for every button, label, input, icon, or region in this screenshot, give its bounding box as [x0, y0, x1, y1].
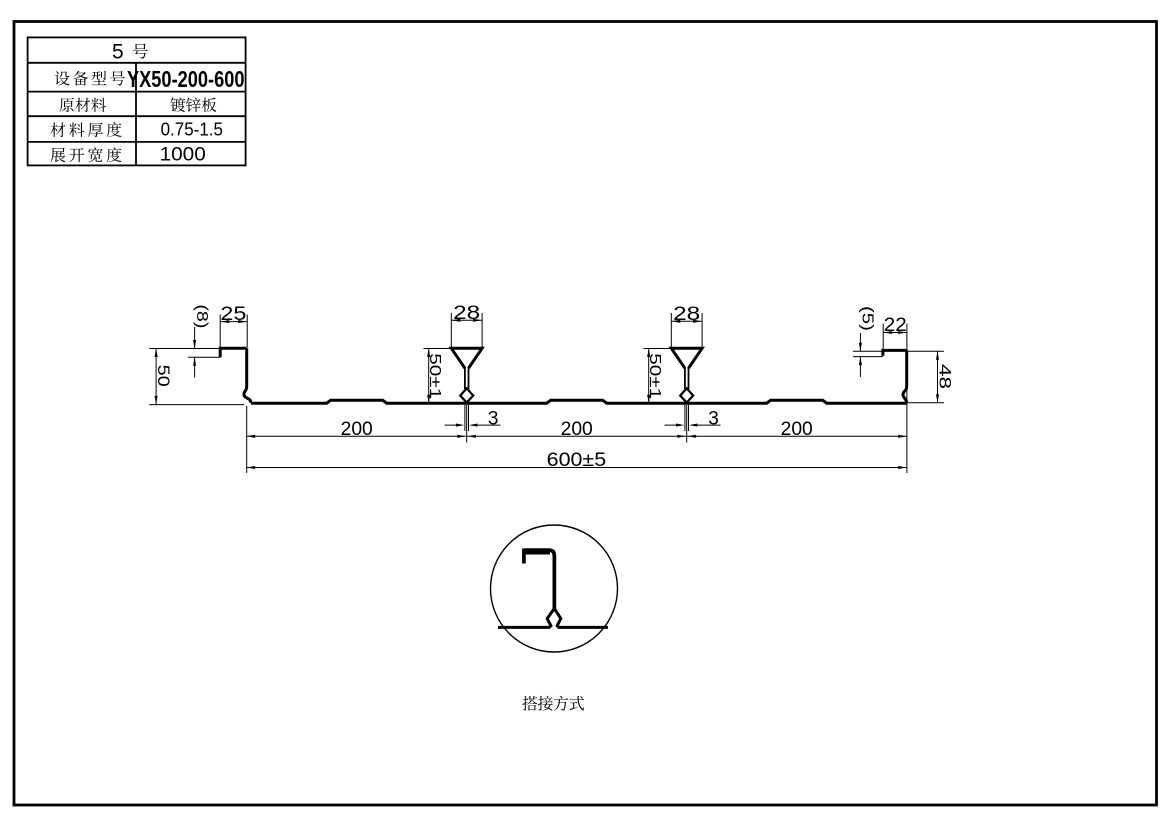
- svg-text:600±5: 600±5: [547, 450, 607, 471]
- svg-text:3: 3: [488, 409, 499, 430]
- svg-text:5: 5: [112, 41, 124, 64]
- svg-text:50: 50: [154, 365, 173, 387]
- svg-text:3: 3: [708, 409, 719, 430]
- svg-text:28: 28: [673, 304, 700, 325]
- svg-text:YX50-200-600: YX50-200-600: [127, 66, 245, 92]
- svg-text:200: 200: [341, 419, 373, 440]
- svg-text:25: 25: [220, 304, 246, 325]
- svg-text:200: 200: [561, 419, 593, 440]
- svg-text:(5): (5): [859, 306, 876, 331]
- svg-text:28: 28: [453, 303, 480, 324]
- svg-text:0.75-1.5: 0.75-1.5: [161, 120, 223, 140]
- svg-text:1000: 1000: [160, 145, 206, 166]
- svg-text:50±1: 50±1: [646, 353, 663, 399]
- svg-text:48: 48: [936, 364, 955, 389]
- svg-text:200: 200: [781, 419, 813, 440]
- svg-text:(8): (8): [193, 304, 210, 328]
- svg-text:22: 22: [884, 315, 907, 336]
- svg-text:50±1: 50±1: [426, 353, 443, 399]
